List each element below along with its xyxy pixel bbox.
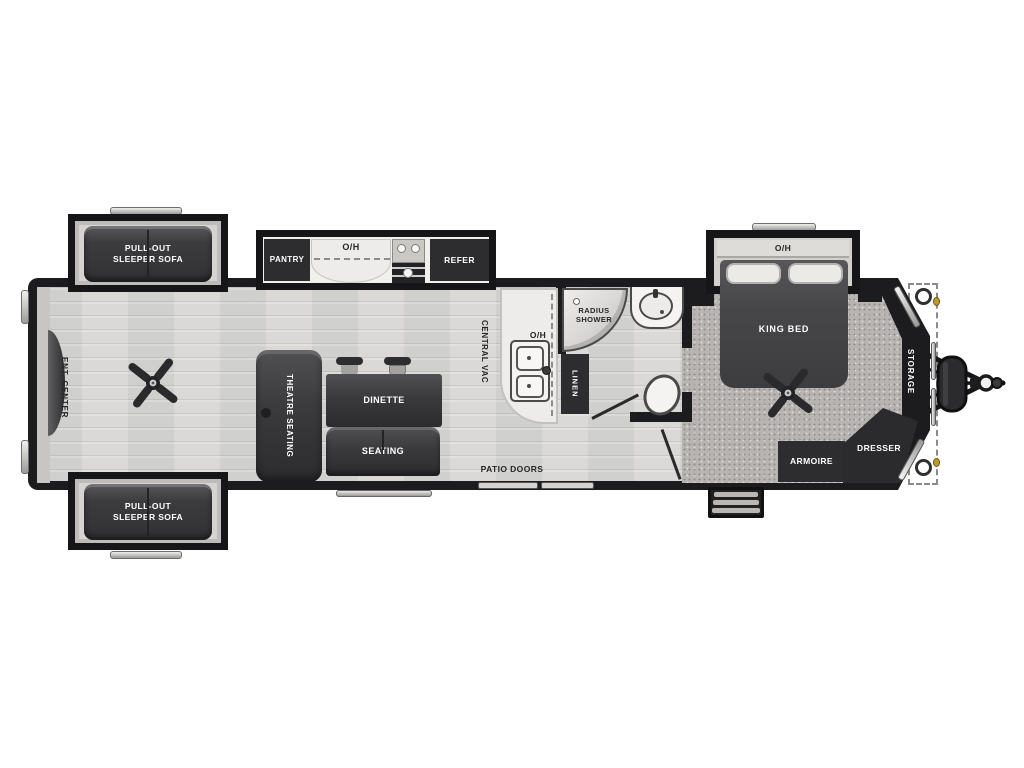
refer-label: REFER: [444, 255, 475, 266]
marker-dot-top: [933, 297, 940, 306]
patio-door-panel: [541, 482, 594, 489]
exterior-handle-top: [21, 290, 29, 324]
armoire-label: ARMOIRE: [790, 456, 833, 467]
marker-dot-bottom: [933, 458, 940, 467]
burner: [403, 268, 413, 278]
counter-dashed-line: [551, 294, 553, 416]
burner: [397, 244, 406, 253]
sofa-seam: [147, 230, 149, 278]
bed-overhead-cabinet: O/H: [717, 240, 849, 258]
ceiling-fan-living: [122, 352, 184, 414]
linen-cabinet: LINEN: [561, 354, 589, 414]
vanity-faucet: [653, 289, 658, 298]
seating-seam: [382, 430, 384, 450]
pantry-cabinet: PANTRY: [264, 239, 310, 281]
dinette-stool-seat: [384, 357, 411, 365]
kitchen-sink: [510, 340, 550, 402]
kitchen-oh-label: O/H: [342, 242, 359, 253]
theatre-label: THEATRE SEATING: [284, 374, 294, 457]
floorplan-canvas: ENT. CENTER PULL-OUT SLEEPER SOFA PULL-O…: [0, 0, 1024, 768]
vanity-drain: [660, 310, 664, 314]
theatre-cupholder: [261, 408, 271, 418]
refrigerator: REFER: [430, 239, 489, 281]
dinette-table: DINETTE: [326, 374, 442, 427]
sofa-seam: [147, 488, 149, 536]
stabilizer-circle-bottom: [915, 459, 932, 476]
step: [714, 492, 758, 497]
slide-rail: [336, 490, 432, 497]
counter-oh-label: O/H: [530, 330, 546, 341]
dinette-label: DINETTE: [363, 395, 404, 406]
central-vac-label: CENTRAL VAC: [479, 320, 489, 383]
entry-steps: [708, 487, 764, 518]
stabilizer-circle-top: [915, 288, 932, 305]
sink-faucet: [542, 366, 551, 375]
storage-label: STORAGE: [905, 349, 915, 394]
bed-oh-label: O/H: [775, 243, 791, 254]
patio-door-panel: [478, 482, 538, 489]
sink-drain: [527, 356, 531, 360]
burner: [411, 244, 420, 253]
patio-doors-label: PATIO DOORS: [481, 464, 544, 475]
pillow: [788, 263, 843, 284]
ent-center-label: ENT. CENTER: [59, 357, 69, 418]
front-trim-strip: [931, 342, 936, 380]
front-trim-strip: [931, 388, 936, 426]
dinette-stool-seat: [336, 357, 363, 365]
pillow: [726, 263, 781, 284]
wall-notch-right: [858, 284, 882, 302]
king-bed-label: KING BED: [759, 324, 809, 335]
stove: [392, 239, 425, 263]
step: [712, 508, 760, 513]
radius-shower-label: RADIUS SHOWER: [570, 306, 618, 325]
slide-handle-bottom-sofa: [110, 551, 182, 559]
propane-tank: [938, 357, 966, 411]
sink-drain: [527, 384, 531, 388]
dresser-label: DRESSER: [857, 443, 901, 454]
exterior-handle-bottom: [21, 440, 29, 474]
pantry-label: PANTRY: [270, 255, 304, 265]
armoire: ARMOIRE: [778, 441, 845, 482]
oven: [392, 263, 425, 283]
ceiling-fan-bedroom: [757, 362, 819, 424]
step: [713, 500, 759, 505]
linen-label: LINEN: [570, 370, 579, 398]
